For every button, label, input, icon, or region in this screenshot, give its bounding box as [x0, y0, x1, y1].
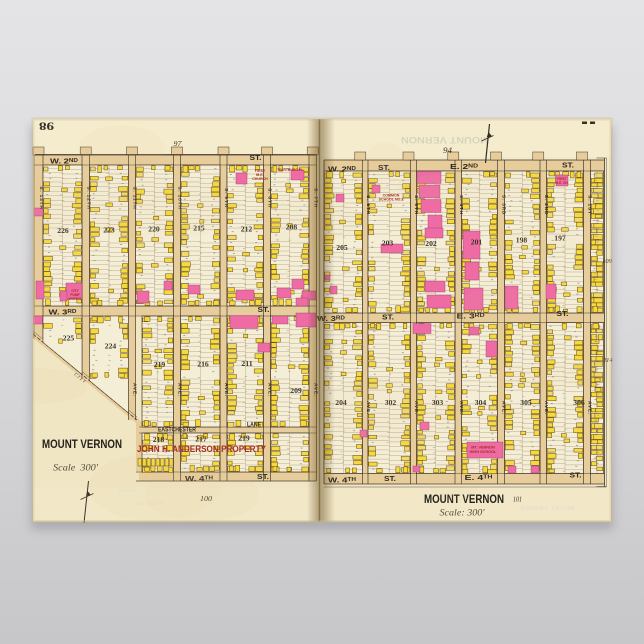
svg-text:AVE.: AVE.: [223, 383, 229, 397]
svg-text:AVE.: AVE.: [543, 401, 549, 415]
svg-text:ST.: ST.: [570, 471, 582, 480]
svg-text:AVE.: AVE.: [267, 383, 273, 397]
svg-text:225: 225: [63, 335, 75, 343]
svg-text:ST.: ST.: [258, 305, 270, 314]
svg-text:216: 216: [197, 361, 209, 369]
svg-text:S. 2ND: S. 2ND: [543, 195, 549, 215]
svg-text:304: 304: [475, 399, 487, 407]
svg-text:217: 217: [195, 436, 207, 444]
svg-text:211: 211: [241, 360, 253, 368]
svg-text:ST.: ST.: [257, 472, 269, 481]
svg-text:209: 209: [290, 387, 302, 395]
svg-text:S. 5TH: S. 5TH: [413, 195, 419, 215]
svg-text:ST.: ST.: [557, 309, 569, 318]
svg-text:WORKS: WORKS: [69, 297, 81, 301]
svg-text:M.E. CH.: M.E. CH.: [556, 181, 569, 185]
svg-text:224: 224: [105, 343, 117, 351]
svg-text:AVE.: AVE.: [587, 401, 593, 415]
svg-text:Scale 300': Scale 300': [53, 464, 99, 474]
svg-text:WARTBURG PL.: WARTBURG PL.: [278, 168, 304, 172]
svg-text:94: 94: [443, 146, 452, 155]
svg-text:MOUNT VERNON: MOUNT VERNON: [401, 134, 489, 145]
svg-text:97: 97: [174, 139, 182, 148]
svg-text:218: 218: [153, 436, 165, 444]
svg-text:202: 202: [425, 240, 437, 248]
svg-text:101: 101: [513, 495, 522, 504]
svg-text:201: 201: [471, 239, 483, 247]
svg-text:AVE.: AVE.: [132, 383, 138, 397]
svg-text:NONREV TNUOM: NONREV TNUOM: [521, 506, 576, 512]
svg-text:MT. VERNON: MT. VERNON: [471, 446, 495, 450]
svg-text:205: 205: [336, 244, 348, 252]
svg-text:LANE: LANE: [247, 422, 261, 429]
svg-text:ST.: ST.: [562, 161, 574, 170]
svg-text:MOUNT VERNON: MOUNT VERNON: [42, 439, 122, 451]
svg-text:EASTCHESTER: EASTCHESTER: [158, 427, 196, 434]
svg-text:219: 219: [154, 361, 166, 369]
svg-text:305: 305: [520, 399, 532, 407]
svg-text:AVE.: AVE.: [177, 383, 183, 397]
svg-text:ST.: ST.: [382, 313, 394, 322]
svg-text:219: 219: [238, 435, 250, 443]
svg-text:S. 1ST: S. 1ST: [587, 195, 593, 214]
svg-text:ST.: ST.: [384, 474, 396, 483]
svg-text:203: 203: [382, 240, 394, 248]
svg-text:Scale: 300': Scale: 300': [440, 509, 486, 519]
svg-text:ST.: ST.: [250, 153, 262, 162]
svg-text:AVE.: AVE.: [501, 401, 507, 415]
svg-text:HIGH SCHOOL: HIGH SCHOOL: [470, 450, 497, 454]
svg-text:98: 98: [39, 119, 54, 133]
svg-text:CHURCH: CHURCH: [252, 177, 268, 181]
svg-text:306: 306: [573, 399, 585, 407]
